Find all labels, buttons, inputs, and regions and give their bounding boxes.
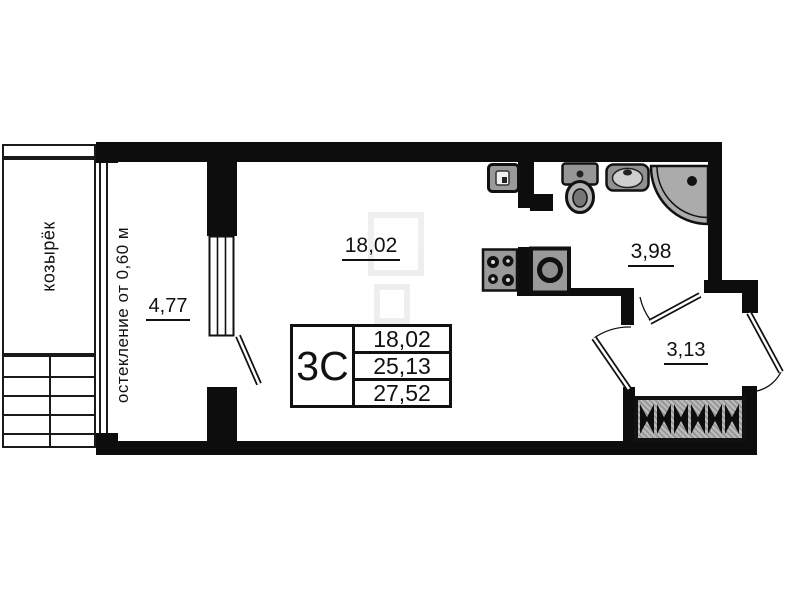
- wall-top: [96, 142, 722, 162]
- unit-type-cell: 3С: [293, 327, 355, 405]
- floor-plan: козырёк остекление от 0,60 м 1: [0, 0, 799, 600]
- balcony-door-icon: [238, 336, 259, 384]
- watermark-ghost: [368, 212, 424, 324]
- canopy-top-band: [2, 144, 96, 158]
- stove-icon: [483, 250, 517, 291]
- hall-area-label: 3,13: [658, 339, 714, 365]
- area-row: 18,02: [355, 327, 449, 351]
- balcony-window-icon: [210, 237, 234, 336]
- canopy-label: козырёк: [38, 221, 59, 291]
- kitchen-sink-icon: [531, 249, 569, 293]
- stairs: [2, 355, 96, 448]
- area-row: 27,52: [355, 378, 449, 405]
- wardrobe-pattern: [638, 400, 742, 438]
- wall-balcony-upper: [207, 162, 237, 236]
- bathroom-area-label: 3,98: [622, 240, 680, 267]
- stair-divider: [49, 357, 51, 446]
- wall-bathroom-niche-stub: [530, 194, 553, 211]
- balcony-area-label: 4,77: [141, 295, 195, 321]
- wall-balcony-pillar: [207, 387, 237, 441]
- living-area-label: 18,02: [333, 234, 409, 261]
- wall-room-door-jamb: [621, 288, 634, 325]
- wall-bathroom-bottom: [517, 288, 627, 296]
- glazing-label: остекление от 0,60 м: [113, 227, 133, 403]
- wall-entry-corner: [742, 280, 758, 313]
- wall-right-upper: [708, 142, 722, 282]
- glazing-line-outer: [99, 163, 101, 433]
- toilet-icon: [563, 164, 598, 213]
- wall-glazing-bottom-block: [96, 433, 118, 455]
- wardrobe-icon: [634, 396, 746, 442]
- unit-info-table: 3С 18,02 25,13 27,52: [290, 324, 452, 408]
- washing-machine-icon: [489, 165, 519, 192]
- entrance-door-icon: [749, 313, 781, 391]
- area-row: 25,13: [355, 351, 449, 378]
- wall-glazing-top-block: [96, 142, 118, 163]
- corner-shower-icon: [651, 166, 708, 224]
- wash-basin-icon: [607, 165, 649, 191]
- bathroom-door-icon: [640, 295, 700, 322]
- room-door-icon: [594, 327, 631, 389]
- wall-bottom: [96, 441, 757, 455]
- wall-bathroom-left-lower: [518, 247, 534, 292]
